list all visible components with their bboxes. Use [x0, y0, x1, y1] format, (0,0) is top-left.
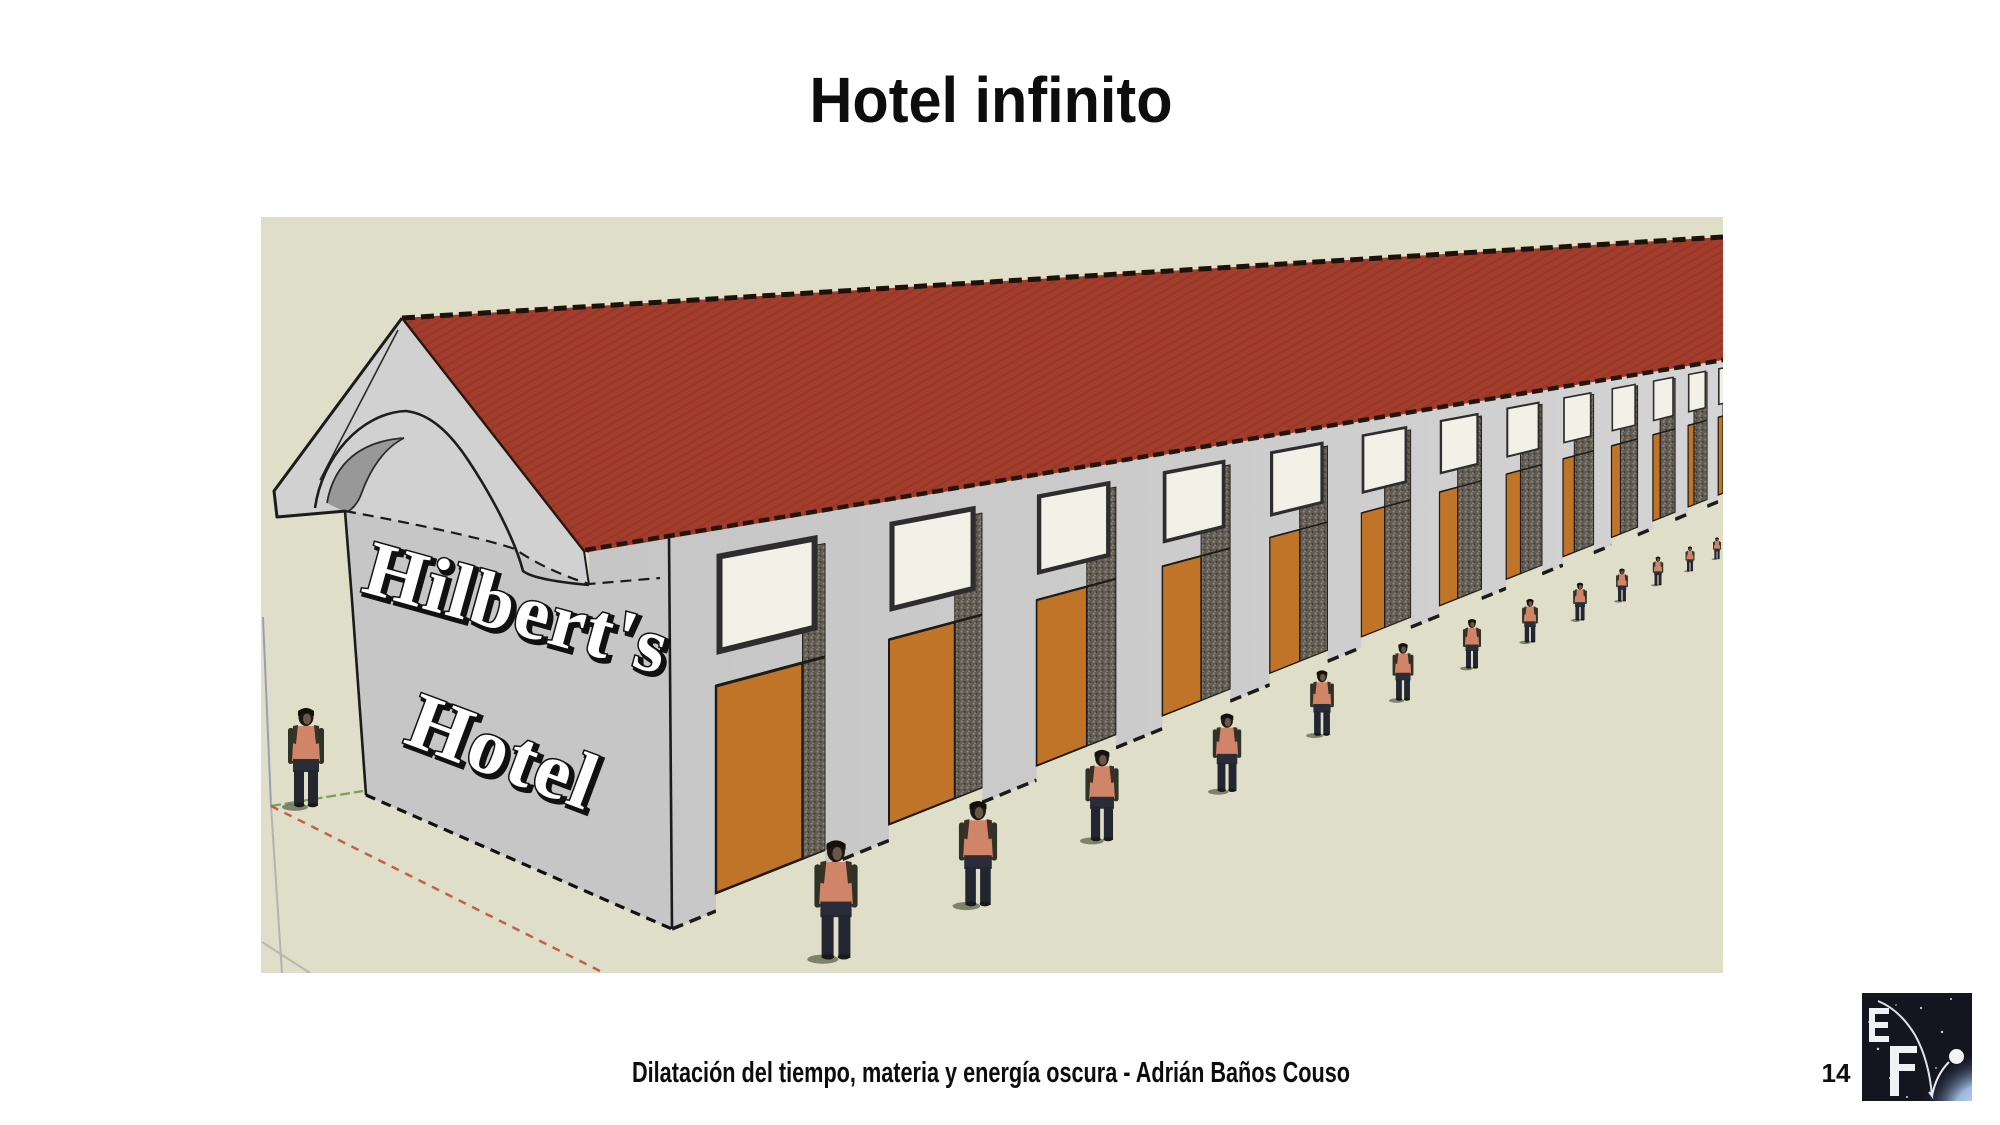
svg-text:14: 14 [1822, 1058, 1851, 1088]
svg-text:Hotel infinito: Hotel infinito [810, 64, 1173, 136]
svg-text:Dilatación del tiempo, materia: Dilatación del tiempo, materia y energía… [632, 1057, 1350, 1089]
